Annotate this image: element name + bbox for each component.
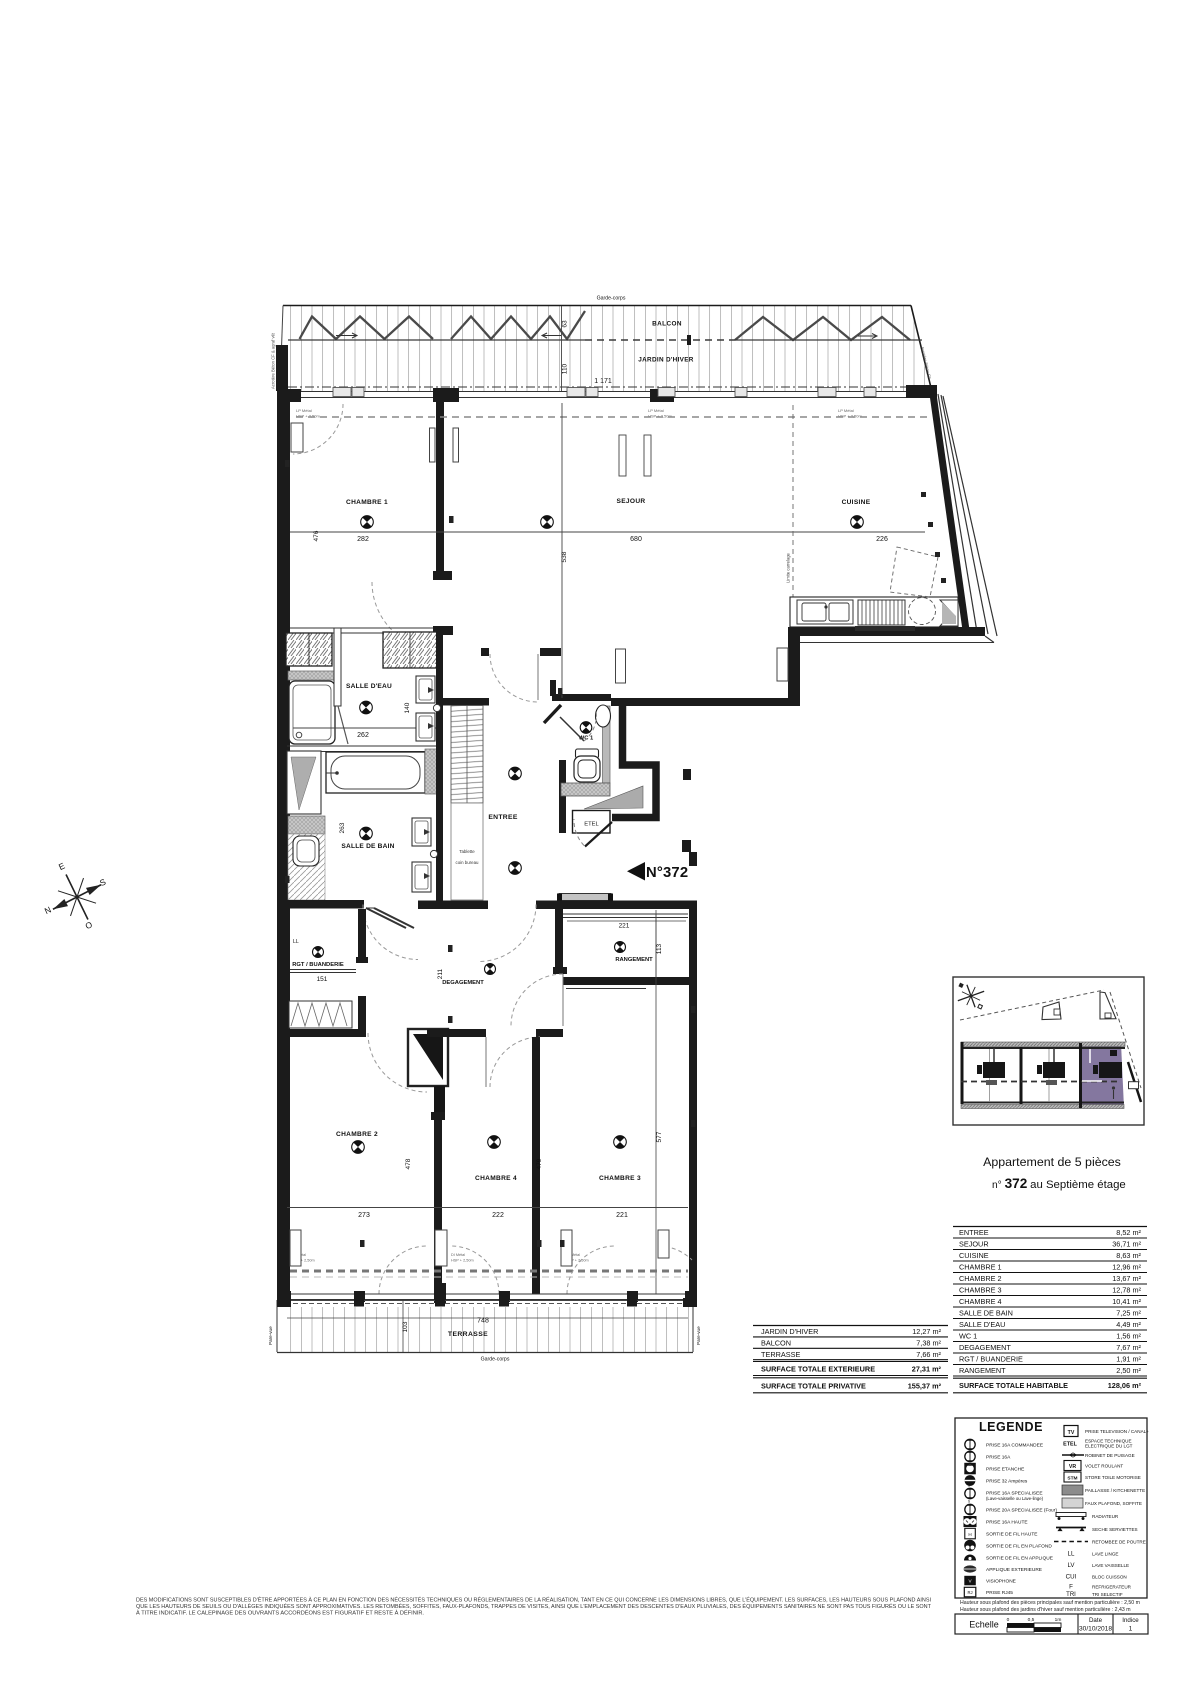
- svg-text:262: 262: [357, 732, 369, 739]
- svg-text:CUISINE: CUISINE: [959, 1251, 989, 1260]
- svg-text:CHAMBRE 3: CHAMBRE 3: [959, 1286, 1002, 1295]
- svg-text:27,31 m²: 27,31 m²: [912, 1365, 942, 1374]
- svg-text:JARDIN D'HIVER: JARDIN D'HIVER: [761, 1327, 818, 1336]
- svg-text:273: 273: [358, 1212, 370, 1219]
- svg-text:RGT / BUANDERIE: RGT / BUANDERIE: [292, 962, 344, 968]
- svg-text:7,67 m²: 7,67 m²: [1116, 1343, 1141, 1352]
- svg-text:n° 372 au Septième étage: n° 372 au Septième étage: [992, 1176, 1126, 1191]
- svg-text:RJ: RJ: [967, 1590, 972, 1595]
- svg-text:RGT / BUANDERIE: RGT / BUANDERIE: [959, 1355, 1023, 1364]
- svg-text:CUI: CUI: [1066, 1574, 1077, 1581]
- svg-text:SALLE DE BAIN: SALLE DE BAIN: [959, 1309, 1013, 1318]
- svg-text:Pare-vue: Pare-vue: [696, 1326, 701, 1345]
- svg-text:103: 103: [402, 1321, 409, 1332]
- svg-text:RADIATEUR: RADIATEUR: [1092, 1514, 1119, 1519]
- svg-text:LEGENDE: LEGENDE: [979, 1420, 1043, 1434]
- svg-text:TV: TV: [1068, 1430, 1075, 1436]
- svg-text:7,66 m²: 7,66 m²: [916, 1350, 941, 1359]
- svg-text:Tablette: Tablette: [459, 849, 475, 854]
- svg-text:LL: LL: [293, 939, 299, 945]
- svg-text:PRISE ETANCHE: PRISE ETANCHE: [986, 1467, 1024, 1473]
- svg-text:SORTIE DE FIL HAUTE: SORTIE DE FIL HAUTE: [986, 1532, 1037, 1538]
- svg-text:LP Métal: LP Métal: [648, 408, 664, 413]
- svg-text:TERRASSE: TERRASSE: [761, 1350, 800, 1359]
- svg-text:RETOMBEE DE POUTRE: RETOMBEE DE POUTRE: [1092, 1540, 1146, 1545]
- svg-text:F: F: [1069, 1584, 1073, 1591]
- svg-text:1,91 m²: 1,91 m²: [1116, 1355, 1141, 1364]
- svg-text:1,56 m²: 1,56 m²: [1116, 1332, 1141, 1341]
- svg-text:CHAMBRE 1: CHAMBRE 1: [959, 1263, 1002, 1272]
- svg-text:ETEL: ETEL: [584, 822, 599, 828]
- svg-text:SALLE DE BAIN: SALLE DE BAIN: [341, 843, 394, 850]
- svg-text:SALLE D'EAU: SALLE D'EAU: [346, 683, 392, 690]
- svg-text:1 171: 1 171: [594, 378, 612, 385]
- svg-text:VOLET ROULANT: VOLET ROULANT: [1085, 1464, 1123, 1469]
- svg-text:BALCON: BALCON: [652, 321, 682, 328]
- svg-text:12,78 m²: 12,78 m²: [1112, 1286, 1141, 1295]
- svg-text:577: 577: [656, 1131, 663, 1142]
- svg-text:CHAMBRE 4: CHAMBRE 4: [959, 1297, 1002, 1306]
- svg-text:151: 151: [317, 976, 328, 983]
- svg-text:PAILLASSE / KITCHENETTE: PAILLASSE / KITCHENETTE: [1085, 1488, 1145, 1493]
- svg-text:36,71 m²: 36,71 m²: [1112, 1240, 1141, 1249]
- svg-text:63: 63: [562, 320, 569, 328]
- svg-text:PRISE RJ45: PRISE RJ45: [986, 1590, 1013, 1596]
- svg-text:2,50 m²: 2,50 m²: [1116, 1366, 1141, 1375]
- svg-text:211: 211: [437, 968, 444, 979]
- svg-text:680: 680: [630, 536, 642, 543]
- svg-text:DEGAGEMENT: DEGAGEMENT: [959, 1343, 1011, 1352]
- svg-text:7,38 m²: 7,38 m²: [916, 1339, 941, 1348]
- svg-text:PRISE 32 Ampères: PRISE 32 Ampères: [986, 1479, 1028, 1485]
- svg-text:TRI SELECTIF: TRI SELECTIF: [1092, 1592, 1123, 1597]
- svg-text:LV: LV: [1067, 1562, 1075, 1569]
- svg-text:Appartement de 5 pièces: Appartement de 5 pièces: [983, 1155, 1121, 1169]
- svg-text:SECHE SERVIETTES: SECHE SERVIETTES: [1092, 1527, 1138, 1532]
- svg-text:PRISE TELEVISION / CANAL+: PRISE TELEVISION / CANAL+: [1085, 1429, 1149, 1434]
- svg-text:LAVE LINGE: LAVE LINGE: [1092, 1552, 1118, 1557]
- svg-text:SORTIE DE FIL EN APPLIQUE: SORTIE DE FIL EN APPLIQUE: [986, 1556, 1053, 1562]
- svg-text:282: 282: [357, 536, 369, 543]
- svg-text:4,49 m²: 4,49 m²: [1116, 1320, 1141, 1329]
- svg-text:(Lave-vaisselle ou Lave-linge): (Lave-vaisselle ou Lave-linge): [986, 1496, 1044, 1501]
- svg-text:APPLIQUE EXTERIEURE: APPLIQUE EXTERIEURE: [986, 1567, 1042, 1573]
- svg-text:Indice: Indice: [1122, 1617, 1139, 1624]
- svg-text:226: 226: [876, 536, 888, 543]
- svg-text:PRISE 16A: PRISE 16A: [986, 1455, 1011, 1461]
- svg-text:222: 222: [492, 1212, 504, 1219]
- svg-text:STM: STM: [1067, 1476, 1077, 1482]
- svg-text:QUE LES HAUTEURS DE SEUILS OU: QUE LES HAUTEURS DE SEUILS OU D'ALLÈGES …: [136, 1603, 931, 1610]
- svg-text:Pare-vue: Pare-vue: [268, 1326, 273, 1345]
- svg-text:RANGEMENT: RANGEMENT: [959, 1366, 1006, 1375]
- svg-text:748: 748: [477, 1318, 489, 1325]
- svg-text:SEJOUR: SEJOUR: [617, 498, 646, 505]
- svg-text:PRISE 16A HAUTE: PRISE 16A HAUTE: [986, 1520, 1028, 1526]
- svg-text:REFRIGERATEUR: REFRIGERATEUR: [1092, 1585, 1132, 1590]
- svg-text:CHAMBRE 1: CHAMBRE 1: [346, 499, 388, 506]
- svg-text:CHAMBRE 2: CHAMBRE 2: [336, 1131, 378, 1138]
- svg-text:BLOC CUISSON: BLOC CUISSON: [1092, 1575, 1127, 1580]
- svg-text:263: 263: [339, 822, 346, 833]
- svg-text:ELECTRIQUE DU LGT: ELECTRIQUE DU LGT: [1085, 1444, 1133, 1449]
- svg-text:coin bureau: coin bureau: [456, 860, 480, 865]
- svg-text:12,96 m²: 12,96 m²: [1112, 1263, 1141, 1272]
- svg-text:RANGEMENT: RANGEMENT: [615, 957, 653, 963]
- svg-text:JARDIN D'HIVER: JARDIN D'HIVER: [638, 357, 694, 364]
- svg-text:Date: Date: [1089, 1617, 1103, 1624]
- svg-text:221: 221: [616, 1212, 628, 1219]
- svg-text:LP Métal: LP Métal: [838, 408, 854, 413]
- svg-text:538: 538: [561, 551, 568, 562]
- svg-text:SORTIE DE FIL EN PLAFOND: SORTIE DE FIL EN PLAFOND: [986, 1544, 1052, 1550]
- svg-text:1: 1: [1129, 1626, 1133, 1633]
- svg-text:DI Métal: DI Métal: [451, 1253, 465, 1257]
- svg-text:ETEL: ETEL: [1063, 1442, 1077, 1448]
- svg-text:BALCON: BALCON: [761, 1339, 791, 1348]
- svg-text:Echelle: Echelle: [969, 1620, 999, 1630]
- svg-text:Garde-corps: Garde-corps: [597, 296, 626, 302]
- svg-text:478: 478: [405, 1158, 412, 1169]
- svg-text:7,25 m²: 7,25 m²: [1116, 1309, 1141, 1318]
- svg-text:CUISINE: CUISINE: [842, 499, 871, 506]
- svg-text:DES MODIFICATIONS SONT SUSCEPT: DES MODIFICATIONS SONT SUSCEPTIBLES D'ÊT…: [136, 1596, 931, 1604]
- svg-text:ROBINET DE PUISAGE: ROBINET DE PUISAGE: [1085, 1453, 1135, 1458]
- svg-text:Hauteur sous plafond des jardi: Hauteur sous plafond des jardins d'hiver…: [960, 1607, 1131, 1613]
- svg-text:Hauteur sous plafond des pièce: Hauteur sous plafond des pièces principa…: [960, 1600, 1140, 1606]
- svg-text:LAVE VAISSELLE: LAVE VAISSELLE: [1092, 1563, 1129, 1568]
- svg-text:VR: VR: [1069, 1464, 1076, 1470]
- svg-text:13,67 m²: 13,67 m²: [1112, 1274, 1141, 1283]
- svg-text:155,37 m²: 155,37 m²: [908, 1382, 942, 1391]
- svg-text:VISIOPHONE: VISIOPHONE: [986, 1579, 1016, 1585]
- svg-text:Limite carrelage: Limite carrelage: [786, 552, 791, 582]
- svg-text:1m: 1m: [1055, 1617, 1062, 1623]
- svg-text:8,63 m²: 8,63 m²: [1116, 1251, 1141, 1260]
- svg-text:SURFACE TOTALE HABITABLE: SURFACE TOTALE HABITABLE: [959, 1381, 1068, 1390]
- svg-text:479: 479: [536, 1158, 543, 1169]
- svg-text:110: 110: [562, 363, 569, 374]
- svg-text:476: 476: [313, 530, 320, 541]
- svg-text:DEGAGEMENT: DEGAGEMENT: [442, 980, 484, 986]
- svg-text:ENTREE: ENTREE: [488, 814, 518, 821]
- svg-text:TRI: TRI: [1066, 1592, 1076, 1598]
- svg-text:Acrotère Béton CF & agraf vêt: Acrotère Béton CF & agraf vêt: [271, 332, 276, 389]
- svg-text:Garde-corps: Garde-corps: [481, 1357, 510, 1363]
- svg-text:30/10/2018: 30/10/2018: [1079, 1626, 1112, 1633]
- svg-text:PRISE 16A COMMANDEE: PRISE 16A COMMANDEE: [986, 1443, 1043, 1449]
- svg-text:H: H: [968, 1532, 971, 1537]
- svg-text:WC 1: WC 1: [959, 1332, 977, 1341]
- svg-text:10,41 m²: 10,41 m²: [1112, 1297, 1141, 1306]
- svg-text:SURFACE TOTALE PRIVATIVE: SURFACE TOTALE PRIVATIVE: [761, 1382, 866, 1391]
- svg-text:8,52 m²: 8,52 m²: [1116, 1228, 1141, 1237]
- svg-text:0,5: 0,5: [1028, 1617, 1035, 1623]
- svg-text:LP Métal: LP Métal: [296, 408, 312, 413]
- svg-text:PRISE 20A SPECIALISEE (Four): PRISE 20A SPECIALISEE (Four): [986, 1508, 1057, 1514]
- svg-text:12,27 m²: 12,27 m²: [912, 1327, 941, 1336]
- svg-text:LL: LL: [1068, 1551, 1075, 1558]
- svg-text:CHAMBRE 2: CHAMBRE 2: [959, 1274, 1002, 1283]
- svg-text:TERRASSE: TERRASSE: [448, 1331, 488, 1338]
- svg-text:STORE TOILE MOTORISE: STORE TOILE MOTORISE: [1085, 1475, 1141, 1480]
- svg-text:HSP + 2,50m: HSP + 2,50m: [451, 1259, 474, 1263]
- svg-text:CHAMBRE 4: CHAMBRE 4: [475, 1175, 517, 1182]
- svg-text:140: 140: [404, 702, 411, 713]
- svg-text:128,06 m²: 128,06 m²: [1108, 1381, 1142, 1390]
- svg-text:FAUX PLAFOND, SOFFITE: FAUX PLAFOND, SOFFITE: [1085, 1501, 1142, 1506]
- svg-text:À TITRE INDICATIF. LE CALEPINA: À TITRE INDICATIF. LE CALEPINAGE DES OUV…: [136, 1610, 424, 1617]
- svg-text:ENTREE: ENTREE: [959, 1228, 989, 1237]
- svg-text:113: 113: [656, 943, 663, 954]
- svg-text:SEJOUR: SEJOUR: [959, 1240, 989, 1249]
- svg-text:N°372: N°372: [646, 865, 688, 881]
- svg-text:SURFACE TOTALE EXTERIEURE: SURFACE TOTALE EXTERIEURE: [761, 1365, 875, 1374]
- svg-text:SALLE D'EAU: SALLE D'EAU: [959, 1320, 1005, 1329]
- svg-text:0: 0: [1007, 1617, 1010, 1623]
- svg-text:221: 221: [619, 923, 630, 930]
- svg-text:CHAMBRE 3: CHAMBRE 3: [599, 1175, 641, 1182]
